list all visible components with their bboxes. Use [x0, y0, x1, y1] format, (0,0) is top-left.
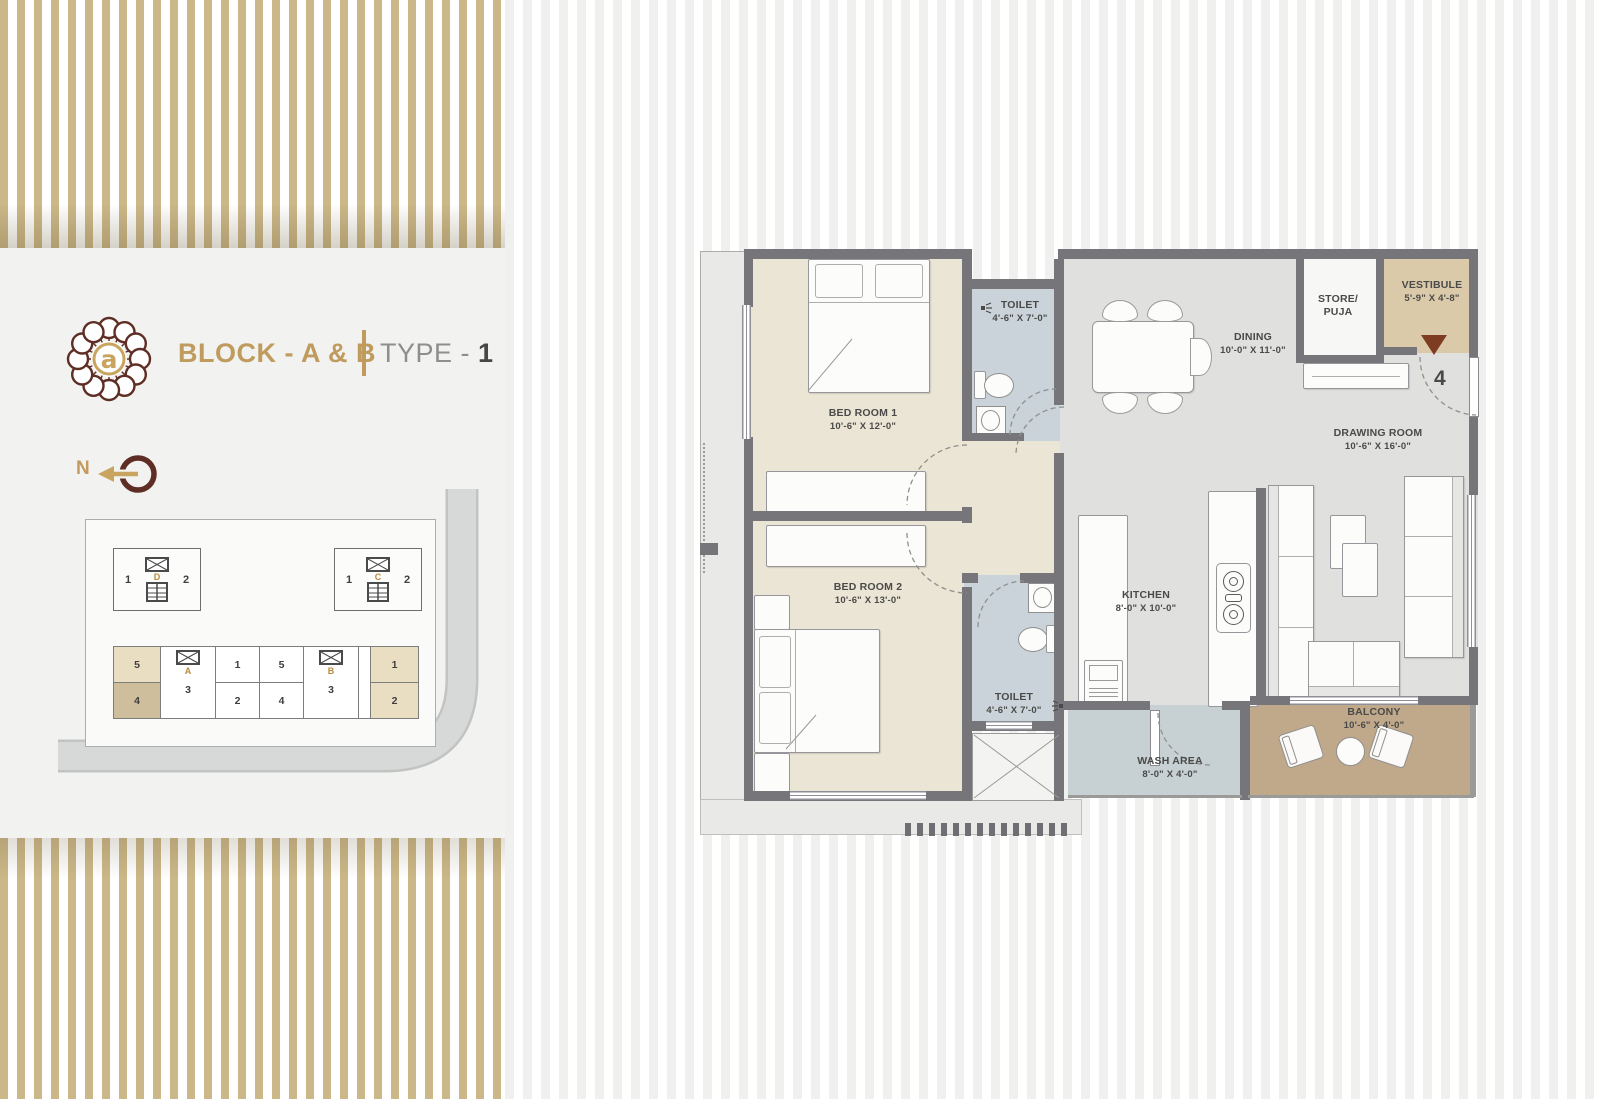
stove-icon [1216, 563, 1251, 633]
sofa-right [1404, 476, 1464, 658]
bedroom2-label: BED ROOM 210'-6" X 13'-0" [834, 581, 903, 607]
side-table [754, 753, 790, 795]
cushion-line [1405, 536, 1453, 537]
room-name: DRAWING ROOM [1334, 427, 1423, 439]
coffee-table [1342, 543, 1378, 597]
dining-table [1092, 321, 1194, 393]
wall [744, 437, 753, 801]
block-d-letter: D [154, 572, 161, 582]
room-dim: 10'-6" X 4'-0" [1344, 719, 1405, 732]
core-a-letter: A [185, 665, 192, 677]
wall [744, 249, 753, 307]
room-name: VESTIBULE [1402, 279, 1463, 291]
room-dim: 10'-0" X 11'-0" [1220, 344, 1286, 357]
wall [1384, 347, 1417, 355]
wall [1296, 355, 1384, 363]
balcony-rail [1470, 705, 1476, 797]
bed-1 [808, 259, 930, 393]
store-label: STORE/PUJA [1318, 293, 1358, 319]
drawing-room-label: DRAWING ROOM10'-6" X 16'-0" [1334, 427, 1423, 453]
wall [968, 279, 1060, 289]
fridge-door [1089, 665, 1118, 681]
side-table [754, 595, 790, 630]
cushion-line [1278, 627, 1313, 628]
sofa-back [1269, 486, 1279, 700]
lift-icon [145, 557, 169, 572]
room-name: KITCHEN [1122, 589, 1170, 601]
entry-door-leaf [1469, 357, 1479, 417]
site-plan: 1 D 2 1 [85, 519, 436, 747]
tv-console [1303, 363, 1409, 389]
block-c-unit-2: 2 [393, 549, 421, 610]
cushion-line [1405, 596, 1453, 597]
wash-area-label: WASH AREA8'-0" X 4'-0" [1137, 755, 1203, 781]
toilet2-label: TOILET4'-6" X 7'-0" [986, 691, 1041, 717]
site-block-d: 1 D 2 [113, 548, 201, 611]
fridge-line [1089, 688, 1118, 689]
wall [1020, 573, 1064, 583]
shower-icon [1050, 699, 1064, 713]
room-name: WASH AREA [1137, 755, 1203, 767]
bottom-hatch [905, 823, 1073, 836]
wall-stub [700, 543, 718, 555]
window [986, 721, 1032, 730]
shelf-line [1312, 376, 1400, 377]
duct-area [972, 733, 1062, 801]
block-c-core: C [363, 549, 393, 610]
toilet1-label: TOILET4'-6" X 7'-0" [992, 299, 1047, 325]
wall [744, 249, 972, 259]
wash-basin-icon [976, 406, 1006, 436]
lift-icon [176, 650, 200, 665]
unit-cell-1: 1 [215, 646, 260, 683]
burner-center [1229, 577, 1238, 586]
wall [962, 249, 972, 441]
kitchen-label: KITCHEN8'-0" X 10'-0" [1116, 589, 1177, 615]
loveseat [1308, 641, 1400, 698]
wall [1296, 255, 1304, 363]
wall [1376, 255, 1384, 363]
toilet-wc-icon [984, 373, 1014, 398]
cushion-line [1353, 642, 1354, 686]
tan-stripes-bottom [0, 838, 505, 1099]
window [790, 791, 926, 800]
block-c-letter: C [375, 572, 382, 582]
wardrobe-1 [766, 471, 926, 513]
room-name: PUJA [1318, 306, 1358, 319]
lift-icon [366, 557, 390, 572]
sofa-back [1452, 477, 1463, 657]
unit-cell-5b: 5 [259, 646, 304, 683]
cushion-line [1278, 556, 1313, 557]
pillow [759, 692, 791, 744]
wall [968, 433, 1024, 441]
room-dim: 4'-6" X 7'-0" [986, 704, 1041, 717]
unit-cell-1-highlight: 1 [370, 646, 419, 683]
entry-arrow-icon [1421, 335, 1447, 355]
room-dim: 10'-6" X 16'-0" [1334, 440, 1423, 453]
wall [962, 507, 972, 523]
core-b-letter: B [328, 665, 335, 677]
site-block-c: 1 C 2 [334, 548, 422, 611]
wardrobe-2 [766, 525, 926, 567]
block-c-unit-1: 1 [335, 549, 363, 610]
room-name: DINING [1234, 331, 1272, 343]
window [1467, 495, 1476, 647]
unit-cell-4b: 4 [259, 682, 304, 719]
core-b: B 3 [303, 646, 359, 719]
unit-cell-3: 3 [185, 683, 191, 697]
pillow [815, 264, 863, 298]
bed-2 [754, 629, 880, 753]
core-a: A 3 [160, 646, 216, 719]
room-name: BED ROOM 1 [829, 407, 898, 419]
brand-logo: a [66, 316, 152, 402]
brochure-page: a BLOCK - A & B TYPE - 1 N 1 D [0, 0, 1600, 1099]
dining-label: DINING10'-0" X 11'-0" [1220, 331, 1286, 357]
stairs-icon [367, 582, 389, 602]
pillow [875, 264, 923, 298]
pillow [759, 636, 791, 688]
room-dim: 4'-6" X 7'-0" [992, 312, 1047, 325]
wash-rail [1068, 795, 1242, 798]
unit-cell-5-highlight: 5 [113, 646, 161, 683]
refrigerator-icon [1084, 660, 1123, 704]
balcony-table [1336, 737, 1365, 766]
lobby-floor [960, 438, 1060, 578]
blanket-line [809, 302, 929, 303]
wall [1064, 701, 1150, 710]
block-d-unit-1: 1 [114, 549, 142, 610]
balcony-rail [1248, 795, 1474, 798]
window [742, 305, 751, 439]
wall [1256, 488, 1266, 705]
room-dim: 8'-0" X 10'-0" [1116, 602, 1177, 615]
sliding-window [1290, 696, 1418, 705]
room-dim: 10'-6" X 12'-0" [829, 420, 898, 433]
blanket-line [795, 630, 796, 752]
toilet-wc-icon [1018, 627, 1048, 652]
wall [1469, 249, 1478, 357]
unit-number: 4 [1434, 367, 1446, 391]
room-name: TOILET [1001, 299, 1039, 311]
burner-center [1229, 610, 1238, 619]
floor-plan: BED ROOM 110'-6" X 12'-0" TOILET4'-6" X … [690, 243, 1485, 843]
svg-text:a: a [101, 345, 118, 374]
room-name: BALCONY [1347, 706, 1400, 718]
room-dim: 8'-0" X 4'-0" [1137, 768, 1203, 781]
wall [1469, 415, 1478, 495]
bedroom1-label: BED ROOM 110'-6" X 12'-0" [829, 407, 898, 433]
block-d-unit-2: 2 [172, 549, 200, 610]
lift-icon [319, 650, 343, 665]
room-name: BED ROOM 2 [834, 581, 903, 593]
unit-cell-2-highlight: 2 [370, 682, 419, 719]
fridge-line [1089, 692, 1118, 693]
wall [1058, 249, 1478, 259]
balcony-label: BALCONY10'-6" X 4'-0" [1344, 706, 1405, 732]
wall [744, 511, 972, 521]
vestibule-label: VESTIBULE5'-9" X 4'-8" [1402, 279, 1463, 305]
wall [962, 587, 972, 801]
knob-strip [1225, 594, 1242, 602]
north-arrow-icon [94, 448, 162, 500]
room-name: TOILET [995, 691, 1033, 703]
block-d-core: D [142, 549, 172, 610]
wall [1054, 703, 1064, 801]
unit-cell-2: 2 [215, 682, 260, 719]
room-dim: 5'-9" X 4'-8" [1402, 292, 1463, 305]
wall [1240, 701, 1250, 800]
wall [962, 573, 978, 583]
room-name: STORE/ [1318, 293, 1358, 305]
fridge-line [1089, 696, 1118, 697]
unit-cell-3b: 3 [328, 683, 334, 697]
stairs-icon [146, 582, 168, 602]
unit-cell-4-highlight: 4 [113, 682, 161, 719]
room-dim: 10'-6" X 13'-0" [834, 594, 903, 607]
